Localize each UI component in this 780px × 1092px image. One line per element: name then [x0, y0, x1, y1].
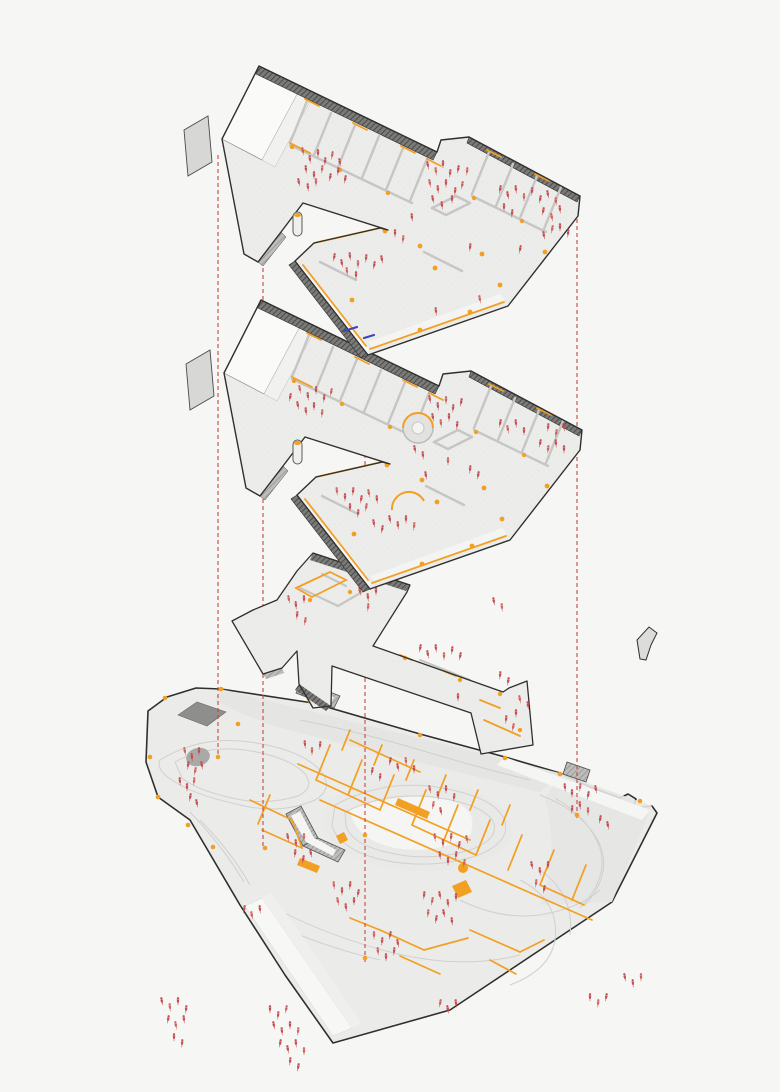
- orange-node: [363, 956, 368, 961]
- orange-node: [219, 687, 224, 692]
- orange-node: [236, 722, 241, 727]
- capsule-top: [294, 213, 301, 217]
- orange-node: [503, 756, 508, 761]
- orange-node: [186, 823, 191, 828]
- orange-node: [216, 755, 221, 760]
- diagram-canvas: [0, 0, 780, 1092]
- orange-node: [156, 795, 161, 800]
- exploded-axonometric-diagram: Exploded axonometric diagram: [0, 0, 780, 1092]
- orange-node: [575, 813, 580, 818]
- orange-node: [211, 845, 216, 850]
- orange-node: [163, 696, 168, 701]
- orange-node: [148, 755, 153, 760]
- capsule-top: [294, 441, 301, 445]
- orange-node: [558, 772, 563, 777]
- orange-node: [638, 799, 643, 804]
- orange-node: [418, 733, 423, 738]
- orange-node: [363, 833, 368, 838]
- orange-node: [263, 846, 268, 851]
